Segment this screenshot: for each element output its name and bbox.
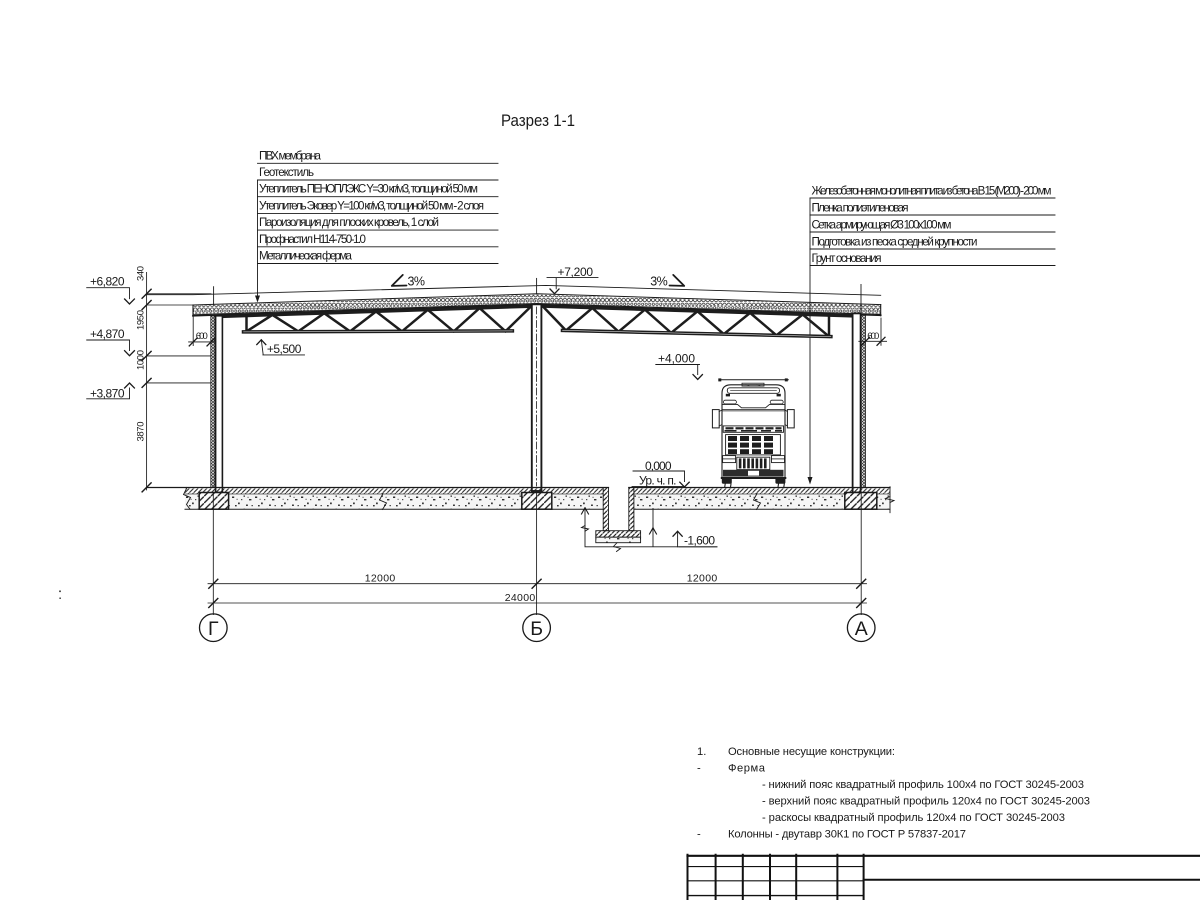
svg-text:Грунт основания: Грунт основания (812, 252, 882, 265)
svg-text:1950: 1950 (136, 310, 147, 330)
svg-text:Основные несущие конструкции:: Основные несущие конструкции: (728, 746, 895, 758)
svg-text:Б: Б (530, 618, 543, 640)
svg-text:+7,200: +7,200 (558, 265, 594, 279)
svg-text:24000: 24000 (505, 592, 536, 604)
svg-text:+3,870: +3,870 (90, 386, 125, 400)
svg-text:+4,000: +4,000 (658, 351, 695, 365)
svg-text:Профнастил Н114-750-1.0: Профнастил Н114-750-1.0 (259, 233, 366, 246)
svg-text:340: 340 (136, 266, 147, 281)
svg-text:А: А (855, 618, 868, 640)
svg-text:Разрез 1-1: Разрез 1-1 (501, 111, 575, 130)
svg-text:+4,870: +4,870 (90, 327, 125, 341)
svg-text:- нижний пояс квадратный профи: - нижний пояс квадратный профиль 100х4 п… (762, 779, 1084, 791)
svg-text:Г: Г (208, 618, 219, 640)
svg-text:12000: 12000 (365, 573, 396, 585)
svg-text:1000: 1000 (136, 350, 147, 370)
svg-text:Ур. ч. п.: Ур. ч. п. (639, 474, 677, 488)
svg-text:-: - (697, 763, 701, 775)
svg-text:-1,600: -1,600 (684, 534, 715, 548)
svg-text:- раскосы квадратный профиль 1: - раскосы квадратный профиль 120х4 по ГО… (762, 812, 1065, 824)
svg-text:Пленка полиэтиленовая: Пленка полиэтиленовая (812, 202, 909, 215)
svg-text:12000: 12000 (687, 573, 718, 585)
svg-text:Ферма: Ферма (728, 763, 766, 775)
svg-text:Утеплитель ПЕНОПЛЭКС Y=30 кг/м: Утеплитель ПЕНОПЛЭКС Y=30 кг/м3, толщино… (259, 183, 478, 196)
svg-text:Металлическая ферма: Металлическая ферма (259, 250, 353, 263)
svg-text:600: 600 (196, 331, 208, 342)
svg-text:Подготовка из песка средней кр: Подготовка из песка средней крупности (812, 236, 978, 249)
svg-text:- верхний пояс квадратный проф: - верхний пояс квадратный профиль 120х4 … (762, 796, 1090, 808)
svg-text:Сетка армирующая Ø3 100х100 мм: Сетка армирующая Ø3 100х100 мм (812, 219, 952, 232)
svg-text:3%: 3% (650, 274, 668, 288)
svg-text:Геотекстиль: Геотекстиль (259, 166, 314, 179)
svg-text:-: - (697, 829, 701, 841)
svg-text:3870: 3870 (136, 422, 147, 442)
svg-text:Колонны - двутавр 30К1 по ГОСТ: Колонны - двутавр 30К1 по ГОСТ Р 57837-2… (728, 829, 966, 841)
svg-text:Пароизоляция для плоских крове: Пароизоляция для плоских кровель, 1 слой (259, 216, 439, 229)
svg-text:1.: 1. (697, 746, 706, 758)
svg-text:+6,820: +6,820 (90, 275, 125, 289)
svg-text:600: 600 (867, 331, 879, 342)
svg-text:3%: 3% (408, 274, 426, 288)
svg-text:ПВХ мембрана: ПВХ мембрана (259, 149, 322, 162)
svg-text:Железобетонная монолитная плит: Железобетонная монолитная плита из бетон… (812, 185, 1052, 198)
svg-text:Утеплитель Эковер Y=100 кг/м3,: Утеплитель Эковер Y=100 кг/м3, толщиной … (259, 199, 484, 212)
svg-text:+5,500: +5,500 (267, 342, 302, 356)
